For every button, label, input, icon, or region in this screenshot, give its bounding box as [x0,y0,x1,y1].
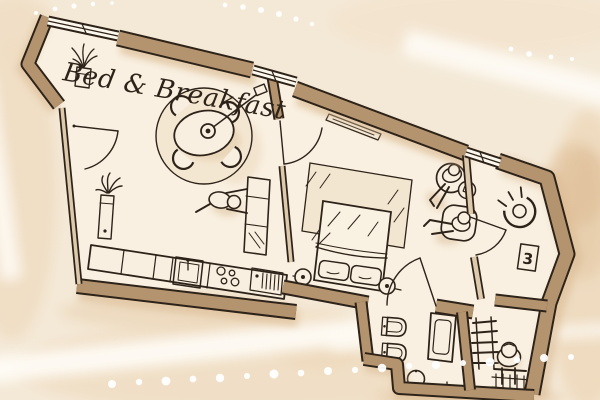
toilet [381,317,406,337]
shower [428,313,456,362]
room-number-plate: 3 [517,244,538,271]
bed [314,201,391,291]
tall-cabinet [98,195,114,239]
floor-plan-illustration: 3 [0,0,600,400]
pillow [350,265,382,286]
floor-plan-canvas: 3 [0,0,600,400]
pillow [318,260,350,281]
